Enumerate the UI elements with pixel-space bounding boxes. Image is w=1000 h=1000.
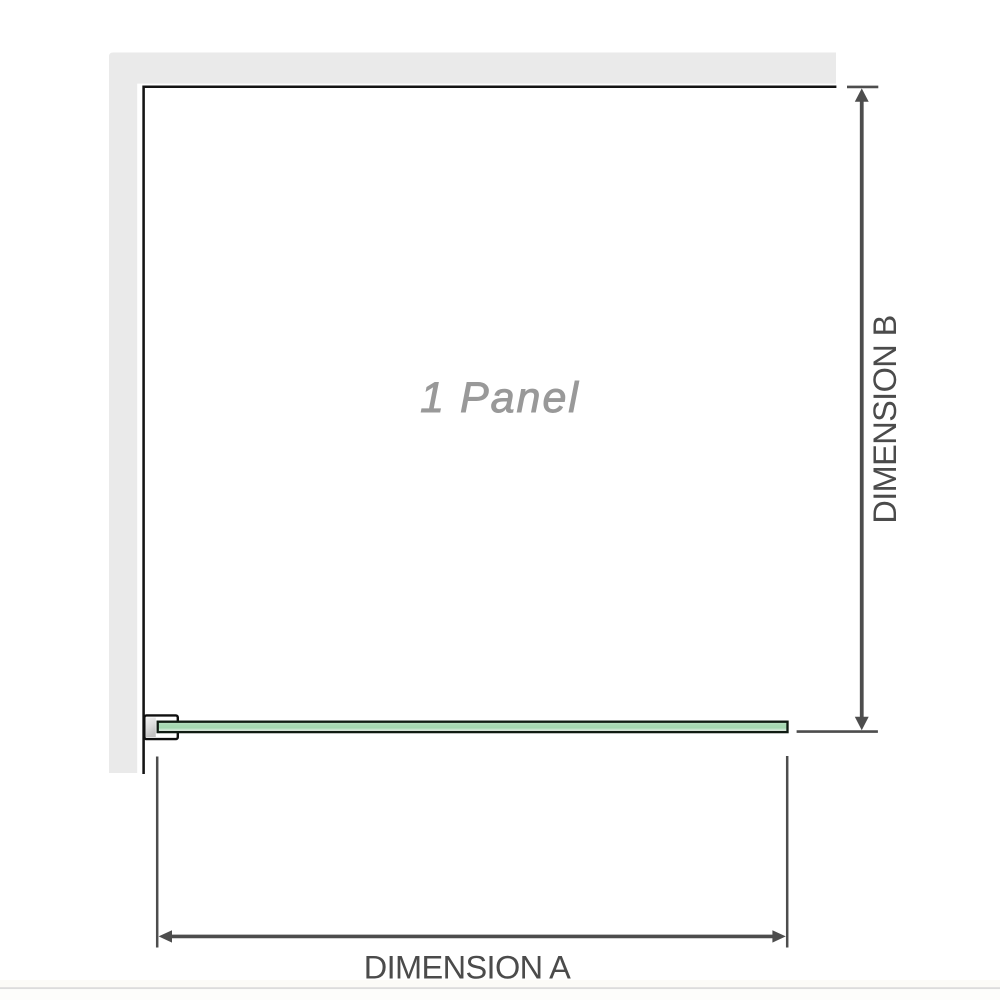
svg-text:DIMENSION A: DIMENSION A (364, 949, 571, 985)
svg-text:DIMENSION B: DIMENSION B (867, 315, 903, 523)
svg-text:1 Panel: 1 Panel (420, 374, 580, 422)
